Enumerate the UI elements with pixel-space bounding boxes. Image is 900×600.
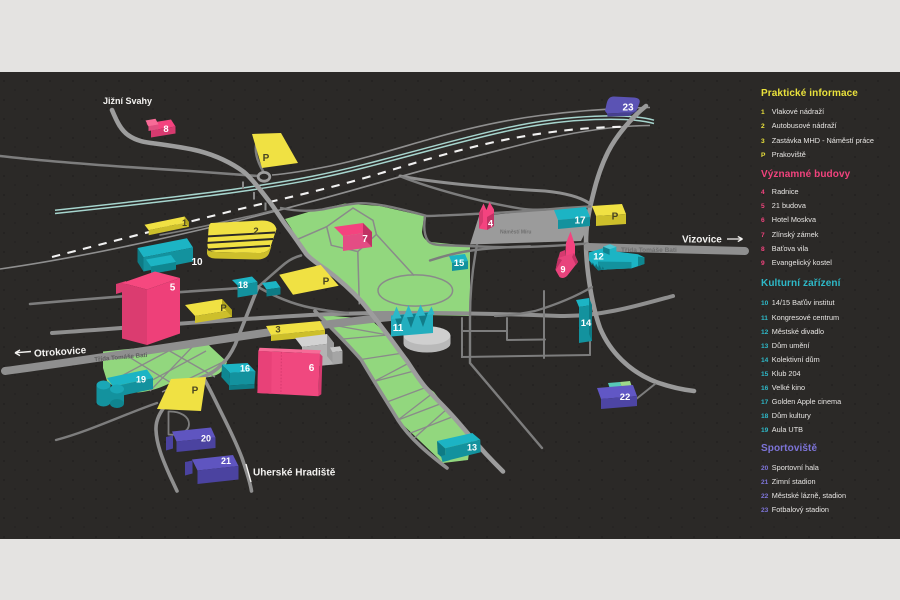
svg-text:7: 7 xyxy=(362,234,368,245)
svg-text:15: 15 xyxy=(454,258,465,269)
svg-text:8: 8 xyxy=(163,124,168,135)
svg-text:12: 12 xyxy=(593,252,604,263)
svg-text:11: 11 xyxy=(393,323,404,334)
svg-text:Jižní Svahy: Jižní Svahy xyxy=(103,96,152,106)
svg-text:4: 4 xyxy=(488,219,493,229)
svg-text:P: P xyxy=(263,153,270,164)
svg-text:23: 23 xyxy=(622,103,634,114)
svg-text:Uherské Hradiště: Uherské Hradiště xyxy=(253,468,336,479)
svg-text:9: 9 xyxy=(560,265,565,275)
svg-text:20: 20 xyxy=(201,434,211,444)
svg-text:10: 10 xyxy=(191,257,203,268)
svg-text:18: 18 xyxy=(238,280,248,290)
svg-text:1: 1 xyxy=(182,218,187,228)
svg-text:P: P xyxy=(220,303,227,314)
svg-text:P: P xyxy=(323,277,330,288)
svg-text:14: 14 xyxy=(581,318,592,329)
svg-text:Náměstí Míru: Náměstí Míru xyxy=(500,230,531,236)
svg-text:2: 2 xyxy=(253,226,258,237)
svg-text:P: P xyxy=(612,212,619,223)
svg-text:Vizovice: Vizovice xyxy=(682,235,722,246)
svg-text:13: 13 xyxy=(467,443,477,453)
svg-text:19: 19 xyxy=(136,375,146,385)
svg-text:16: 16 xyxy=(240,364,250,374)
svg-text:17: 17 xyxy=(574,216,586,227)
svg-text:21: 21 xyxy=(221,456,231,466)
svg-text:22: 22 xyxy=(620,392,631,403)
svg-text:6: 6 xyxy=(309,363,315,374)
svg-text:5: 5 xyxy=(170,283,176,294)
svg-text:Třída Tomáše Bati: Třída Tomáše Bati xyxy=(621,247,677,254)
svg-text:P: P xyxy=(192,386,199,397)
svg-text:3: 3 xyxy=(275,325,280,336)
